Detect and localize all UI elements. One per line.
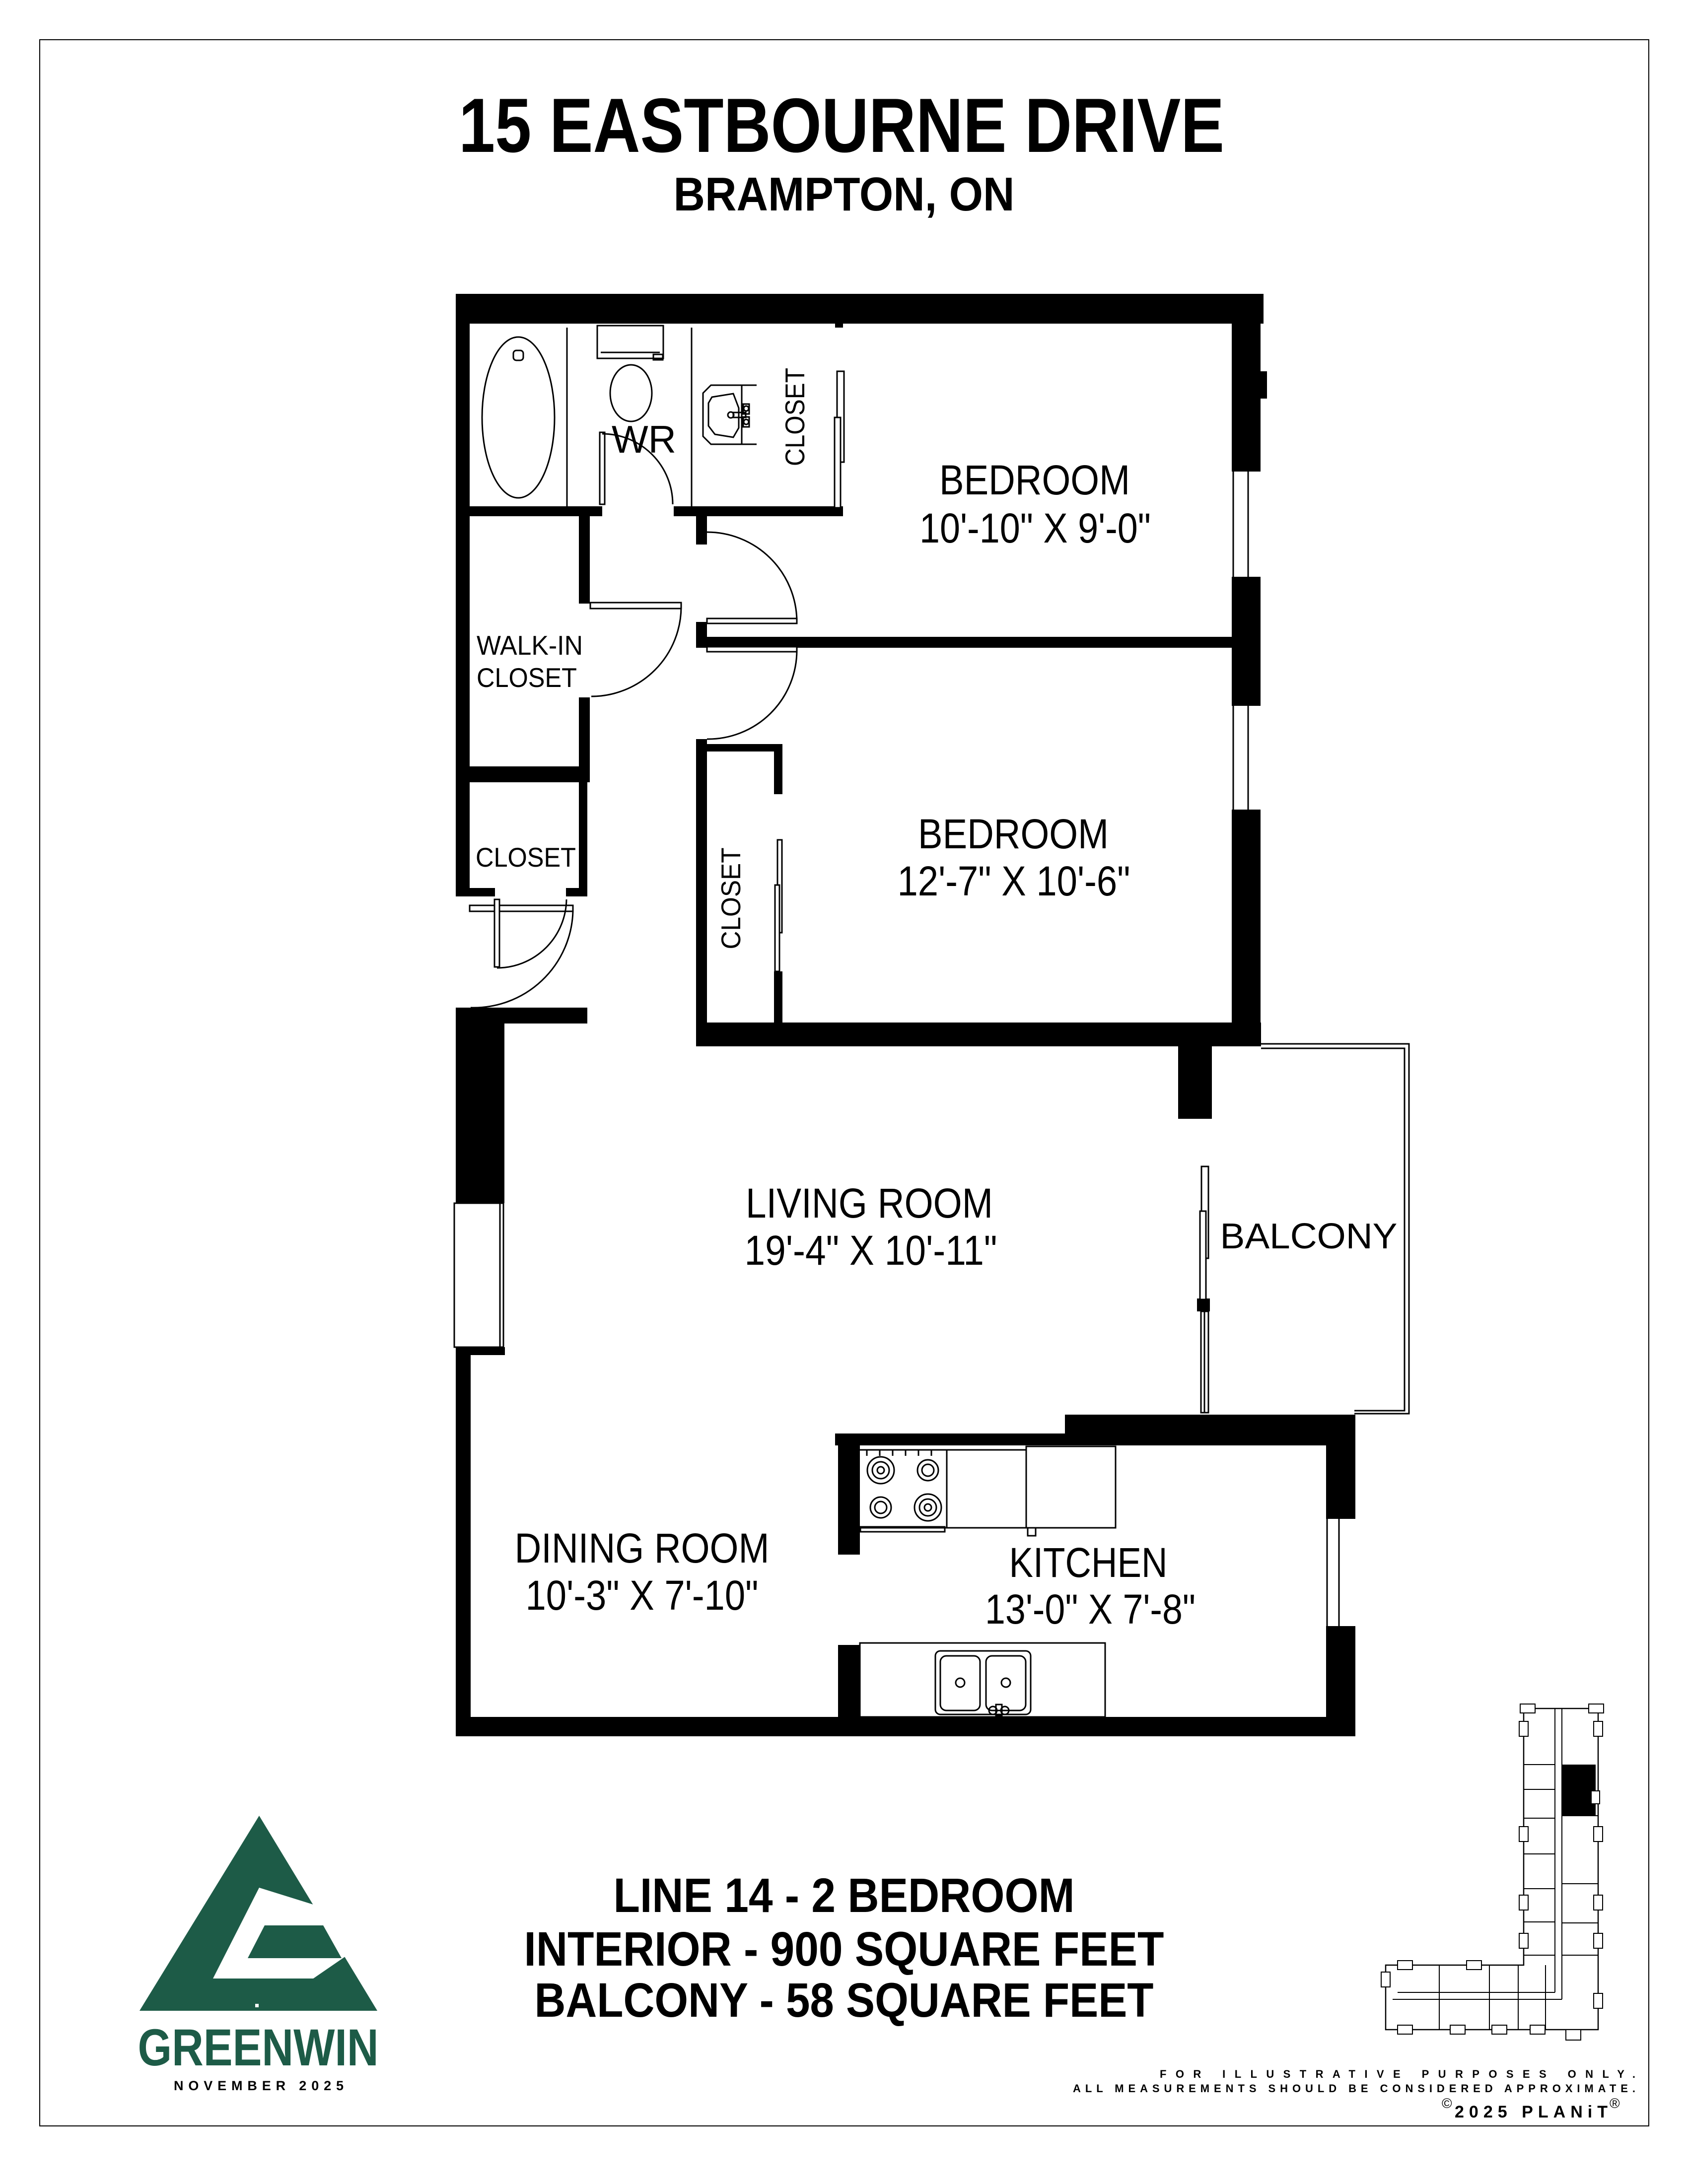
svg-text:BRAMPTON, ON: BRAMPTON, ON [674,168,1015,221]
svg-text:10'-3" X 7'-10": 10'-3" X 7'-10" [526,1572,759,1619]
svg-text:CLOSET: CLOSET [477,662,577,693]
svg-text:®: ® [1610,2096,1620,2111]
svg-text:15 EASTBOURNE DRIVE: 15 EASTBOURNE DRIVE [459,82,1224,168]
svg-text:INTERIOR - 900 SQUARE FEET: INTERIOR - 900 SQUARE FEET [524,1922,1164,1976]
svg-text:LIVING ROOM: LIVING ROOM [746,1180,993,1227]
svg-text:WALK-IN: WALK-IN [477,630,583,661]
svg-text:GREENWIN: GREENWIN [138,2019,379,2077]
svg-text:CLOSET: CLOSET [715,848,746,950]
svg-text:12'-7" X 10'-6": 12'-7" X 10'-6" [898,858,1130,904]
svg-text:LINE 14 - 2 BEDROOM: LINE 14 - 2 BEDROOM [614,1868,1075,1922]
svg-text:BEDROOM: BEDROOM [939,457,1130,503]
svg-text:©: © [1442,2096,1452,2111]
svg-text:BEDROOM: BEDROOM [918,811,1109,857]
svg-text:13'-0" X 7'-8": 13'-0" X 7'-8" [985,1586,1196,1633]
svg-text:19'-4" X 10'-11": 19'-4" X 10'-11" [745,1227,997,1274]
svg-text:10'-10" X 9'-0": 10'-10" X 9'-0" [919,505,1151,551]
svg-text:BALCONY: BALCONY [1220,1217,1398,1256]
svg-text:BALCONY - 58 SQUARE FEET: BALCONY - 58 SQUARE FEET [535,1973,1154,2027]
svg-text:KITCHEN: KITCHEN [1009,1539,1168,1586]
svg-text:CLOSET: CLOSET [476,842,576,873]
svg-text:CLOSET: CLOSET [779,368,810,466]
svg-text:DINING ROOM: DINING ROOM [515,1525,770,1571]
svg-text:WR: WR [612,417,676,461]
